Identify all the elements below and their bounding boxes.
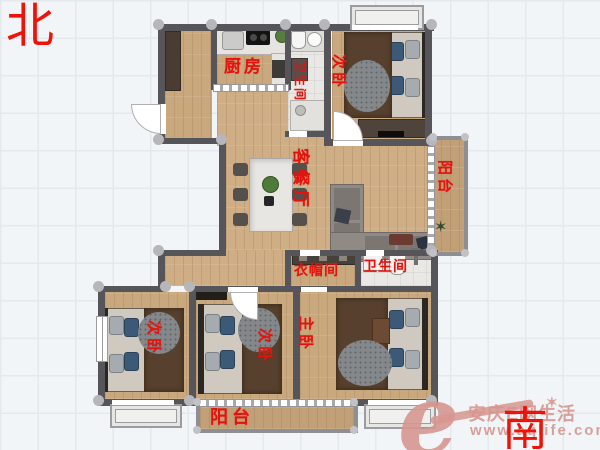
room-label-cloakroom: 衣帽间 bbox=[294, 260, 339, 280]
dining-chair bbox=[233, 213, 248, 226]
dining-plant-icon bbox=[262, 176, 279, 193]
dining-chair bbox=[233, 163, 248, 176]
bed-northeast bbox=[344, 32, 428, 118]
room-label-balcony-south: 阳台 bbox=[210, 403, 254, 429]
foyer-cabinet bbox=[165, 31, 181, 91]
room-label-master: 主卧 bbox=[317, 316, 353, 337]
room-label-kitchen: 厨房 bbox=[224, 52, 264, 77]
dining-chair bbox=[233, 188, 248, 201]
floorplan-canvas: ✶ bbox=[0, 0, 600, 450]
dining-vase bbox=[264, 196, 274, 206]
room-label-living-dining: 客餐厅 bbox=[315, 148, 378, 173]
kitchen-sink bbox=[222, 31, 244, 50]
room-label-bedroom-sw: 次卧 bbox=[165, 320, 201, 341]
balcony-plant-icon: ✶ bbox=[434, 220, 450, 236]
room-label-bathroom-main: 卫生间 bbox=[363, 256, 408, 276]
tv-icon bbox=[378, 131, 404, 137]
stove-icon bbox=[246, 30, 270, 45]
bath-top-sink-icon bbox=[307, 32, 322, 47]
balcony-east-sliding-door bbox=[427, 146, 435, 252]
bath-top-toilet-icon bbox=[291, 31, 306, 49]
room-label-balcony-east: 阳台 bbox=[456, 160, 492, 181]
room-label-bedroom-ne: 次卧 bbox=[350, 54, 386, 75]
dining-table bbox=[249, 158, 293, 232]
window-west bbox=[96, 316, 108, 362]
compass-south: 南 bbox=[502, 406, 548, 450]
bath-top-shower bbox=[290, 100, 325, 131]
bay-window-southwest bbox=[110, 404, 182, 428]
dining-chair bbox=[292, 213, 307, 226]
watermark-logo: e bbox=[398, 372, 459, 450]
kitchen-sliding-door bbox=[213, 84, 289, 92]
compass-north: 北 bbox=[6, 2, 54, 50]
entry-door-icon bbox=[131, 104, 161, 134]
